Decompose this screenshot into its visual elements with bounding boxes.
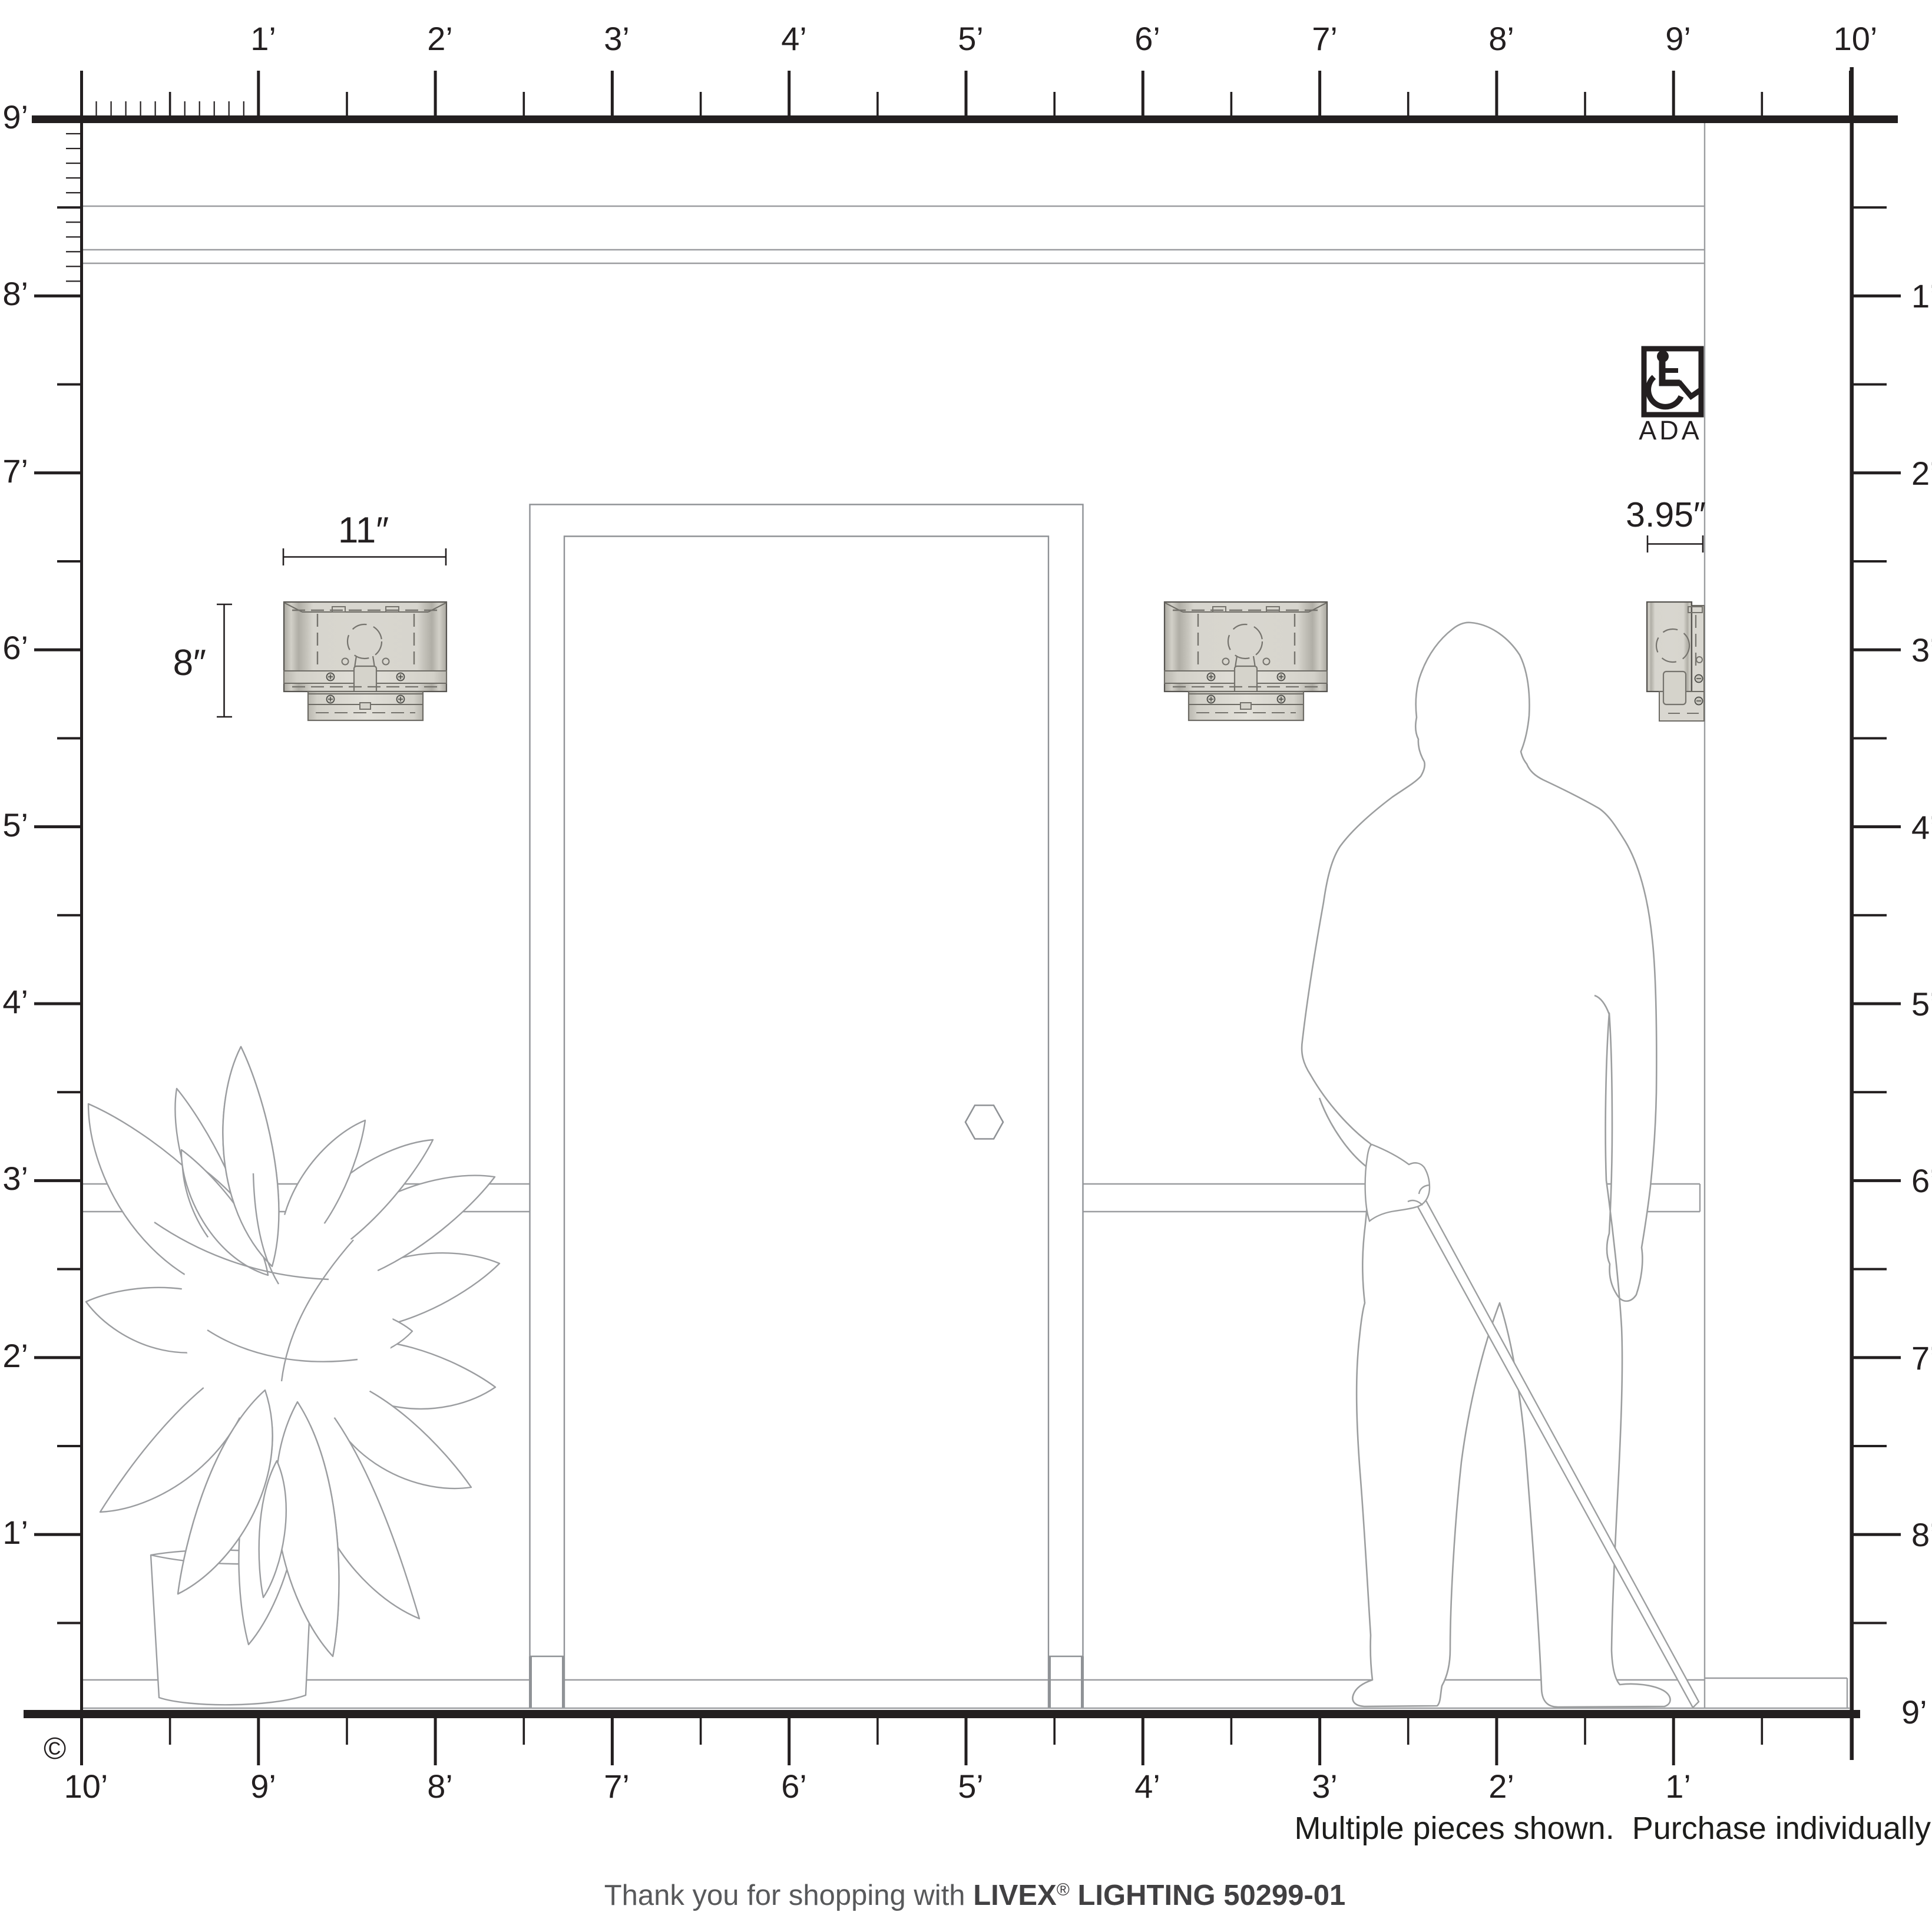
svg-text:8’: 8’ bbox=[1488, 20, 1514, 57]
svg-text:6’: 6’ bbox=[2, 629, 28, 666]
svg-text:6’: 6’ bbox=[781, 1768, 807, 1805]
svg-text:©: © bbox=[44, 1732, 66, 1766]
svg-text:5’: 5’ bbox=[2, 806, 28, 843]
svg-text:2’: 2’ bbox=[427, 20, 453, 57]
svg-text:9’: 9’ bbox=[250, 1768, 276, 1805]
svg-text:8″: 8″ bbox=[173, 643, 206, 683]
svg-text:10’: 10’ bbox=[1834, 20, 1878, 57]
svg-text:3’: 3’ bbox=[1911, 631, 1932, 669]
svg-text:3’: 3’ bbox=[1312, 1768, 1338, 1805]
svg-text:10’: 10’ bbox=[64, 1768, 108, 1805]
svg-text:Multiple pieces shown. Purcha: Multiple pieces shown. Purchase individu… bbox=[1294, 1811, 1931, 1846]
svg-text:7’: 7’ bbox=[1911, 1339, 1932, 1377]
svg-text:6’: 6’ bbox=[1134, 20, 1160, 57]
svg-text:8’: 8’ bbox=[427, 1768, 453, 1805]
svg-text:1’: 1’ bbox=[2, 1514, 28, 1551]
svg-text:6’: 6’ bbox=[1911, 1162, 1932, 1199]
svg-text:4’: 4’ bbox=[2, 983, 28, 1020]
svg-text:5’: 5’ bbox=[1911, 985, 1932, 1023]
svg-text:1’: 1’ bbox=[1665, 1768, 1691, 1805]
svg-text:9’: 9’ bbox=[2, 98, 28, 135]
svg-text:ADA: ADA bbox=[1639, 415, 1702, 445]
svg-text:2’: 2’ bbox=[1911, 455, 1932, 492]
svg-text:8’: 8’ bbox=[1911, 1516, 1932, 1553]
svg-text:2’: 2’ bbox=[2, 1337, 28, 1374]
svg-text:7’: 7’ bbox=[2, 452, 28, 489]
svg-text:3.95″: 3.95″ bbox=[1626, 495, 1706, 534]
svg-text:1’: 1’ bbox=[250, 20, 276, 57]
svg-text:3’: 3’ bbox=[2, 1160, 28, 1197]
svg-text:7’: 7’ bbox=[1312, 20, 1338, 57]
svg-text:4’: 4’ bbox=[1134, 1768, 1160, 1805]
svg-text:5’: 5’ bbox=[958, 20, 984, 57]
svg-text:4’: 4’ bbox=[781, 20, 807, 57]
svg-text:Thank you for shopping with LI: Thank you for shopping with LIVEX® LIGHT… bbox=[604, 1880, 1346, 1911]
svg-text:2’: 2’ bbox=[1488, 1768, 1514, 1805]
svg-text:7’: 7’ bbox=[604, 1768, 630, 1805]
svg-text:3’: 3’ bbox=[604, 20, 630, 57]
svg-text:8’: 8’ bbox=[2, 275, 28, 312]
svg-text:9’: 9’ bbox=[1665, 20, 1691, 57]
svg-text:9’: 9’ bbox=[1901, 1693, 1927, 1731]
svg-text:1’: 1’ bbox=[1911, 277, 1932, 315]
svg-text:5’: 5’ bbox=[958, 1768, 984, 1805]
svg-text:4’: 4’ bbox=[1911, 809, 1932, 846]
svg-text:11″: 11″ bbox=[338, 510, 389, 551]
